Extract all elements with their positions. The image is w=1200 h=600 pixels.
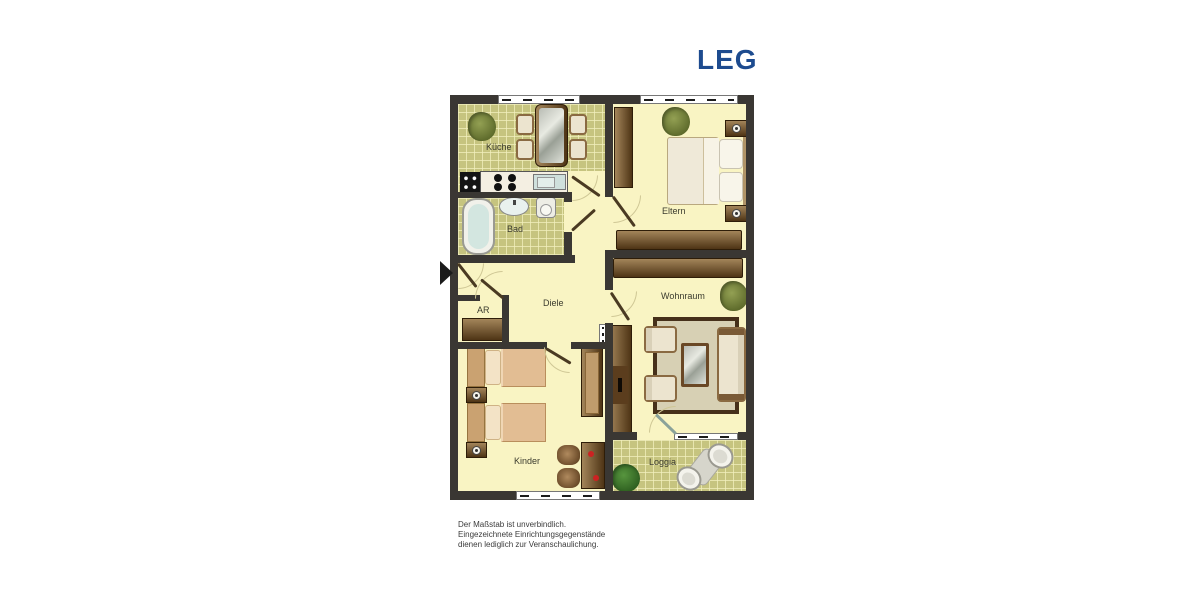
wardrobe — [614, 107, 633, 188]
wall-kueche-bad — [458, 192, 572, 198]
pillow — [485, 405, 501, 440]
sofa-armrest — [719, 394, 744, 400]
dining-table — [535, 104, 568, 167]
wall-right — [746, 95, 754, 500]
nightstand — [466, 442, 487, 458]
stove-cabinet — [460, 172, 480, 193]
wall-bad-right — [564, 192, 572, 202]
lamp-icon — [472, 391, 481, 400]
plant-icon — [662, 107, 690, 136]
leg-logo: LEG — [697, 44, 758, 76]
kitchen-chair — [569, 139, 587, 160]
nightstand — [466, 387, 487, 403]
pillow — [719, 139, 743, 169]
wall-bottom — [450, 491, 754, 500]
lamp-icon — [732, 209, 741, 218]
sideboard — [616, 230, 742, 250]
disclaimer-line: Eingezeichnete Einrichtungsgegenstände — [458, 530, 605, 540]
window-kueche — [498, 95, 580, 104]
armchair — [644, 375, 677, 402]
room-label-eltern: Eltern — [662, 206, 686, 216]
chair-seat — [679, 470, 697, 488]
pillow — [485, 350, 501, 385]
coffee-table-top — [684, 346, 706, 384]
ar-cabinet — [462, 318, 506, 341]
chair-seat — [710, 447, 730, 466]
wardrobe — [581, 348, 603, 417]
wall-loggia-corner — [738, 432, 746, 440]
room-label-kinder: Kinder — [514, 456, 540, 466]
kitchen-chair — [516, 114, 534, 135]
coffee-table — [681, 343, 709, 387]
sofa — [717, 327, 746, 402]
burner — [494, 174, 502, 182]
window-kinder — [516, 491, 600, 500]
room-label-ar: AR — [477, 305, 490, 315]
room-label-diele: Diele — [543, 298, 564, 308]
desk — [581, 442, 605, 489]
window-loggia — [674, 433, 738, 440]
burner — [508, 183, 516, 191]
desk-chair — [557, 445, 580, 465]
lamp-icon — [472, 446, 481, 455]
floor-plan-page: LEG — [0, 0, 1200, 600]
disclaimer-line: dienen lediglich zur Veranschaulichung. — [458, 540, 605, 550]
wall-kinder-top — [458, 342, 547, 349]
duvet-fold — [703, 138, 719, 204]
kitchen-counter — [480, 171, 568, 193]
blanket — [501, 403, 546, 442]
sofa-back — [738, 335, 744, 394]
room-label-loggia: Loggia — [649, 457, 676, 467]
plant-icon — [720, 281, 748, 311]
armchair-back — [646, 328, 652, 351]
sideboard — [613, 258, 743, 278]
washbasin — [499, 197, 529, 216]
window-eltern — [640, 95, 738, 104]
kitchen-chair — [569, 114, 587, 135]
headboard — [467, 348, 485, 387]
room-label-wohnraum: Wohnraum — [661, 291, 705, 301]
floor-plan: Küche Bad Eltern Diele AR Wohnraum Kinde… — [450, 95, 754, 500]
desk-item — [593, 475, 599, 481]
faucet — [513, 200, 516, 205]
nightstand — [725, 205, 747, 222]
room-label-kueche: Küche — [486, 142, 512, 152]
kitchen-sink — [533, 174, 566, 190]
wall-ar-right — [502, 295, 509, 342]
wall-kinder-wohnraum — [605, 323, 613, 491]
toilet — [536, 197, 556, 218]
bathtub-basin — [468, 204, 489, 249]
armchair — [644, 326, 677, 353]
plant-icon — [612, 464, 640, 492]
bathtub — [462, 198, 495, 255]
plant-icon — [468, 112, 496, 141]
wall-loggia-top — [605, 432, 637, 440]
entrance-arrow-icon — [440, 261, 453, 285]
room-label-bad: Bad — [507, 224, 523, 234]
wall-left — [450, 95, 458, 500]
disclaimer-text: Der Maßstab ist unverbindlich. Eingezeic… — [458, 520, 605, 550]
lamp-icon — [732, 124, 741, 133]
burner — [508, 174, 516, 182]
wall-kueche-eltern — [605, 104, 613, 197]
cabinet-handle — [618, 378, 622, 392]
wall-bad-bottom — [450, 255, 575, 263]
single-bed — [467, 348, 546, 387]
nightstand — [725, 120, 747, 137]
blanket — [501, 348, 546, 387]
wall-eltern-wohnraum — [605, 250, 754, 258]
toilet-bowl — [540, 204, 552, 216]
burner — [494, 183, 502, 191]
kitchen-chair — [516, 139, 534, 160]
wall-kinder-top — [571, 342, 605, 349]
disclaimer-line: Der Maßstab ist unverbindlich. — [458, 520, 605, 530]
single-bed — [467, 403, 546, 442]
desk-chair — [557, 468, 580, 488]
wall-diele-wohnraum — [605, 258, 613, 290]
headboard — [467, 403, 485, 442]
double-bed — [667, 137, 746, 205]
pillow — [719, 172, 743, 202]
table-top — [539, 108, 564, 163]
armchair-back — [646, 377, 652, 400]
sink-basin — [537, 177, 555, 188]
wardrobe-front — [585, 352, 599, 414]
desk-item — [588, 451, 594, 457]
